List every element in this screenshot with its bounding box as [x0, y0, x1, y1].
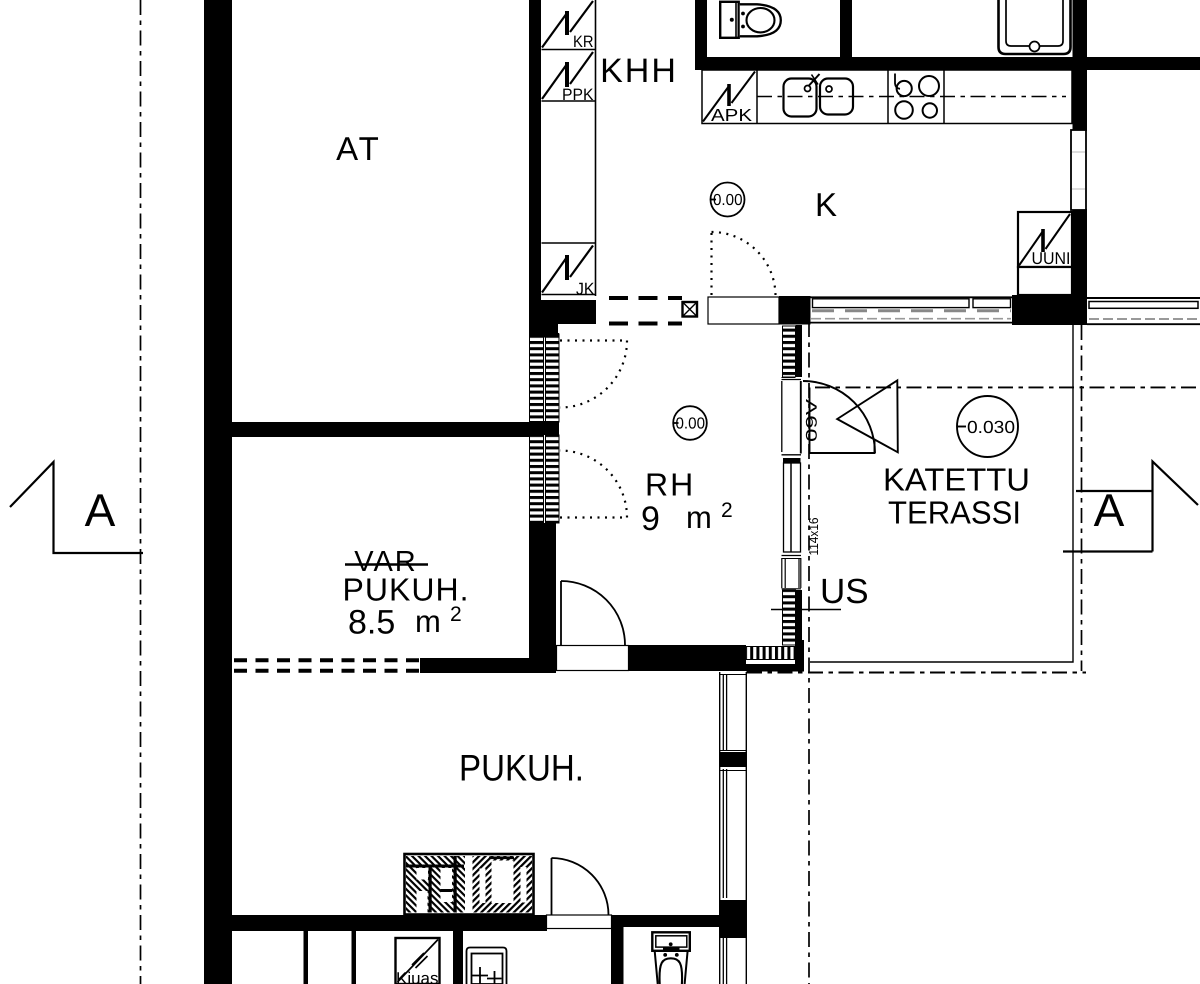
- svg-text:PUKUH.: PUKUH.: [459, 748, 584, 789]
- svg-text:9: 9: [641, 500, 660, 538]
- svg-text:0.030: 0.030: [967, 417, 1015, 437]
- svg-text:TERASSI: TERASSI: [888, 495, 1021, 531]
- svg-text:m: m: [686, 500, 712, 535]
- svg-text:APK: APK: [711, 105, 752, 125]
- svg-text:A60: A60: [802, 399, 819, 443]
- svg-text:KHH: KHH: [600, 52, 678, 90]
- svg-text:JK: JK: [576, 280, 595, 299]
- svg-text:Kiuas: Kiuas: [396, 969, 439, 984]
- svg-text:2: 2: [721, 499, 733, 522]
- svg-text:0.00: 0.00: [676, 415, 706, 432]
- svg-text:0.00: 0.00: [713, 192, 743, 209]
- svg-text:A: A: [1094, 484, 1125, 536]
- svg-text:US: US: [820, 572, 869, 611]
- svg-text:K: K: [815, 186, 837, 223]
- svg-text:KATETTU: KATETTU: [883, 462, 1030, 498]
- svg-text:RH: RH: [645, 467, 695, 503]
- svg-text:KR: KR: [573, 33, 594, 51]
- svg-text:A: A: [85, 484, 116, 536]
- svg-text:PPK: PPK: [562, 86, 594, 104]
- svg-text:AT: AT: [336, 130, 382, 167]
- svg-text:114x16: 114x16: [806, 518, 821, 556]
- svg-text:m: m: [415, 604, 441, 639]
- svg-text:2: 2: [450, 603, 462, 626]
- svg-text:8.5: 8.5: [348, 604, 395, 642]
- svg-text:UUNI: UUNI: [1032, 249, 1071, 268]
